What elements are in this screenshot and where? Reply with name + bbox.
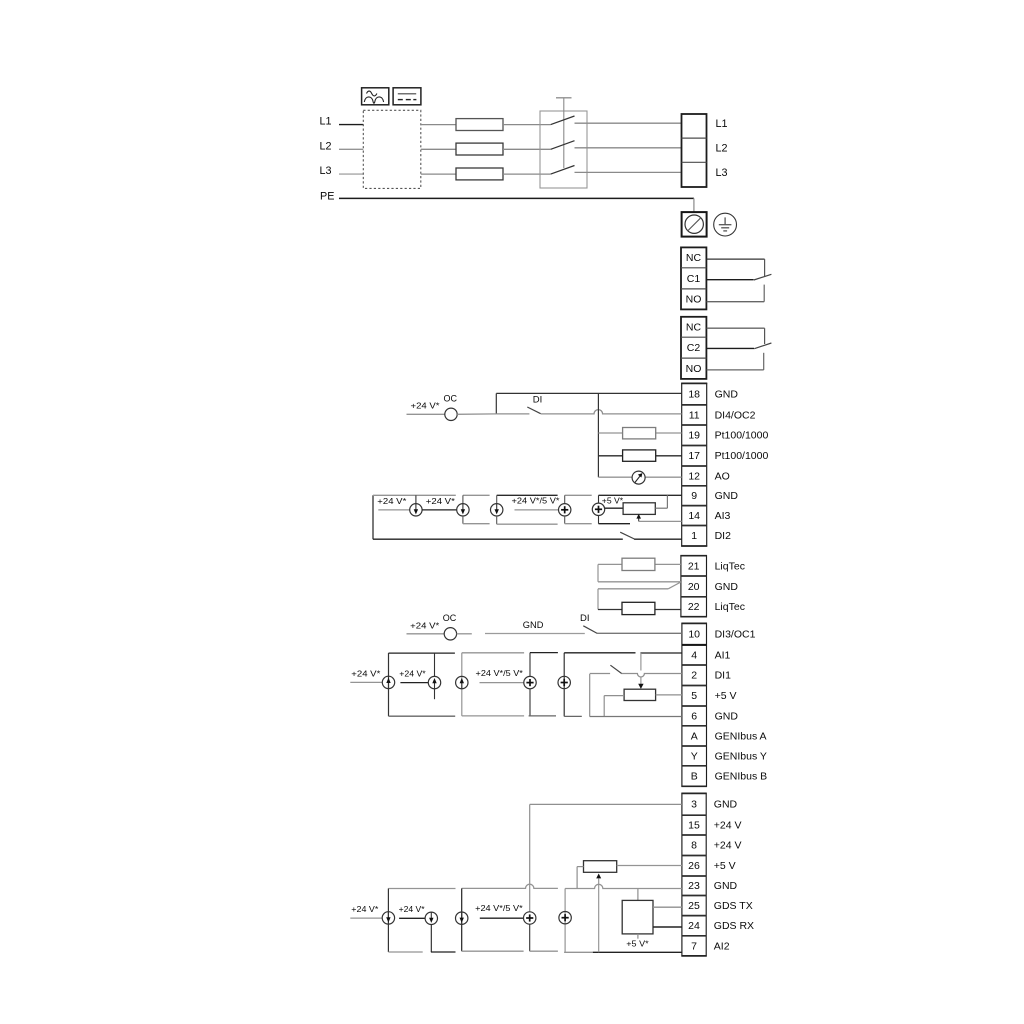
svg-text:NC: NC [686, 321, 702, 333]
svg-text:DI: DI [580, 613, 590, 623]
svg-text:NO: NO [686, 363, 702, 375]
svg-text:Y: Y [691, 750, 698, 762]
svg-text:+24 V: +24 V [714, 820, 742, 832]
svg-text:+5 V: +5 V [714, 860, 736, 872]
svg-text:LiqTec: LiqTec [715, 560, 745, 572]
svg-text:+24 V*: +24 V* [426, 496, 456, 506]
svg-text:GND: GND [715, 581, 739, 593]
svg-text:11: 11 [689, 409, 700, 421]
svg-text:GND: GND [715, 490, 739, 502]
svg-text:AI2: AI2 [714, 940, 730, 952]
svg-text:A: A [691, 730, 698, 742]
svg-text:DI: DI [533, 394, 543, 404]
svg-text:C1: C1 [687, 273, 701, 285]
svg-text:DI1: DI1 [715, 670, 732, 682]
svg-text:Pt100/1000: Pt100/1000 [715, 450, 769, 462]
svg-text:Pt100/1000: Pt100/1000 [715, 430, 769, 442]
svg-text:GENIbus A: GENIbus A [715, 730, 767, 742]
svg-text:AI3: AI3 [715, 510, 731, 522]
svg-text:L1: L1 [716, 118, 728, 130]
svg-text:2: 2 [691, 670, 697, 682]
svg-text:+24 V*: +24 V* [351, 669, 381, 679]
svg-text:8: 8 [691, 840, 697, 852]
svg-text:22: 22 [688, 601, 700, 613]
svg-text:OC: OC [444, 393, 458, 403]
svg-text:+24 V: +24 V [714, 840, 742, 852]
svg-text:20: 20 [688, 581, 700, 593]
svg-text:AO: AO [715, 470, 730, 482]
svg-text:OC: OC [443, 613, 457, 623]
svg-text:23: 23 [688, 880, 700, 892]
svg-text:NC: NC [686, 252, 702, 264]
svg-text:L1: L1 [320, 116, 332, 128]
svg-text:19: 19 [688, 430, 700, 442]
svg-text:AI1: AI1 [715, 649, 731, 661]
svg-text:GND: GND [714, 799, 738, 811]
svg-text:3: 3 [691, 799, 697, 811]
svg-text:15: 15 [688, 820, 700, 832]
svg-text:L2: L2 [320, 140, 332, 152]
svg-text:L3: L3 [320, 165, 332, 177]
svg-text:DI2: DI2 [715, 530, 732, 542]
svg-text:NO: NO [686, 294, 702, 306]
svg-text:9: 9 [691, 490, 697, 502]
svg-text:+24 V*: +24 V* [411, 400, 441, 410]
svg-text:GDS RX: GDS RX [714, 920, 754, 932]
svg-text:GND: GND [715, 710, 739, 722]
svg-text:24: 24 [688, 920, 700, 932]
svg-text:17: 17 [688, 450, 700, 462]
svg-text:B: B [691, 770, 698, 782]
svg-text:DI3/OC1: DI3/OC1 [715, 629, 756, 641]
svg-text:10: 10 [688, 629, 700, 641]
svg-text:+24 V*: +24 V* [377, 496, 407, 506]
svg-text:C2: C2 [687, 342, 701, 354]
svg-text:+24 V*: +24 V* [399, 904, 426, 914]
svg-text:L2: L2 [716, 143, 728, 155]
svg-text:14: 14 [688, 510, 700, 522]
svg-text:21: 21 [688, 560, 700, 572]
svg-text:GND: GND [715, 389, 739, 401]
svg-text:PE: PE [320, 191, 334, 203]
svg-text:18: 18 [688, 389, 700, 401]
svg-text:25: 25 [688, 900, 700, 912]
svg-text:+24 V*/5 V*: +24 V*/5 V* [476, 668, 524, 678]
svg-text:5: 5 [691, 690, 697, 702]
svg-text:26: 26 [688, 860, 700, 872]
svg-text:GDS TX: GDS TX [714, 900, 753, 912]
svg-text:+5 V*: +5 V* [626, 938, 649, 948]
svg-text:1: 1 [691, 530, 697, 542]
svg-text:+24 V*: +24 V* [399, 669, 426, 679]
svg-text:+24 V*/5 V*: +24 V*/5 V* [475, 903, 523, 913]
svg-text:+24 V*/5 V*: +24 V*/5 V* [512, 495, 561, 505]
svg-text:GND: GND [523, 620, 544, 631]
svg-text:7: 7 [691, 940, 697, 952]
svg-text:L3: L3 [716, 167, 728, 179]
svg-text:+24 V*: +24 V* [351, 904, 379, 914]
svg-text:+24 V*: +24 V* [410, 620, 440, 630]
svg-text:4: 4 [691, 649, 697, 661]
svg-text:6: 6 [691, 710, 697, 722]
svg-text:+5 V: +5 V [715, 690, 737, 702]
svg-text:GND: GND [714, 880, 738, 892]
svg-text:DI4/OC2: DI4/OC2 [715, 409, 756, 421]
svg-text:+5 V*: +5 V* [602, 495, 624, 505]
svg-text:LiqTec: LiqTec [715, 601, 745, 613]
svg-text:12: 12 [688, 470, 700, 482]
svg-text:GENIbus B: GENIbus B [715, 770, 768, 782]
svg-text:GENIbus Y: GENIbus Y [715, 750, 767, 762]
